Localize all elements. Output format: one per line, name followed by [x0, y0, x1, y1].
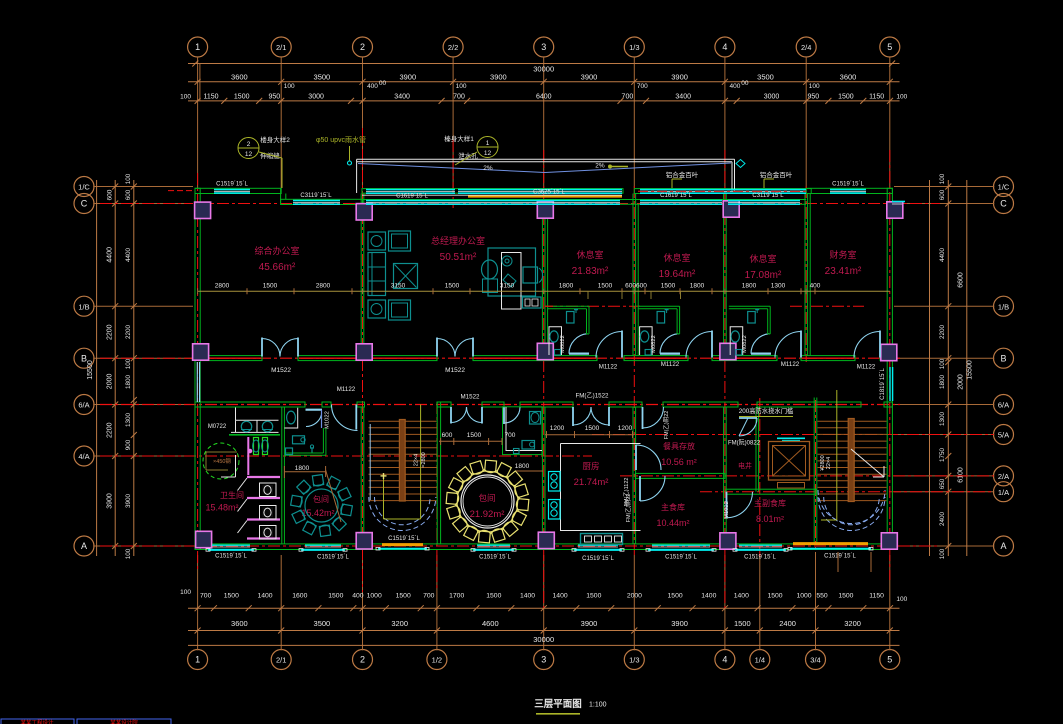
svg-text:600: 600	[107, 189, 114, 200]
svg-text:综合办公室: 综合办公室	[254, 245, 299, 256]
svg-text:M1522: M1522	[445, 367, 465, 374]
svg-text:C1519´15´L: C1519´15´L	[824, 554, 856, 560]
svg-text:C: C	[81, 199, 88, 209]
svg-text:电井: 电井	[738, 461, 752, 470]
svg-text:2: 2	[360, 655, 365, 665]
svg-text:3200: 3200	[391, 619, 408, 628]
svg-text:1500: 1500	[224, 593, 239, 600]
svg-text:1800: 1800	[690, 283, 705, 290]
svg-text:900: 900	[125, 439, 132, 450]
svg-text:泄水孔: 泄水孔	[458, 151, 478, 160]
svg-text:3500: 3500	[314, 619, 331, 628]
svg-text:45.66m²: 45.66m²	[259, 262, 296, 273]
svg-text:C1519´15´L: C1519´15´L	[317, 555, 349, 561]
svg-text:3000: 3000	[764, 94, 780, 101]
svg-text:3600: 3600	[840, 72, 857, 81]
svg-text:C1619´15´L: C1619´15´L	[396, 194, 428, 200]
svg-text:3200: 3200	[844, 619, 861, 628]
svg-text:C: C	[1000, 199, 1007, 209]
svg-text:M1522: M1522	[461, 394, 480, 401]
svg-text:100: 100	[896, 94, 907, 101]
svg-text:400: 400	[729, 83, 740, 90]
svg-text:×450钢: ×450钢	[213, 457, 231, 465]
svg-text:22×4: 22×4	[826, 457, 832, 469]
svg-text:FM(乙)阴22: FM(乙)阴22	[662, 411, 670, 440]
svg-text:1500: 1500	[838, 593, 853, 600]
svg-text:2/2: 2/2	[448, 43, 458, 52]
svg-text:3500: 3500	[757, 72, 774, 81]
svg-text:1400: 1400	[257, 593, 272, 600]
svg-text:700: 700	[622, 94, 634, 101]
svg-text:100: 100	[896, 596, 907, 603]
svg-text:100: 100	[456, 83, 467, 90]
svg-text:3400: 3400	[675, 94, 691, 101]
svg-text:2200: 2200	[107, 422, 114, 438]
svg-text:600: 600	[125, 189, 132, 200]
svg-text:A: A	[81, 541, 87, 551]
svg-text:21.74m²: 21.74m²	[574, 477, 609, 488]
svg-text:1500: 1500	[586, 593, 601, 600]
svg-text:1800: 1800	[125, 375, 132, 390]
svg-text:厨房: 厨房	[582, 461, 599, 471]
svg-text:2200: 2200	[107, 324, 114, 340]
svg-text:4/A: 4/A	[78, 452, 89, 461]
svg-text:1500: 1500	[445, 283, 460, 290]
svg-text:700: 700	[423, 593, 435, 600]
svg-text:休息室: 休息室	[663, 252, 690, 263]
svg-text:1800: 1800	[515, 463, 530, 470]
svg-text:C3119´15´L: C3119´15´L	[300, 193, 332, 199]
svg-text:¥2800: ¥2800	[820, 455, 826, 470]
svg-text:1800: 1800	[559, 283, 574, 290]
svg-text:主食库: 主食库	[661, 502, 685, 512]
svg-text:1200: 1200	[618, 425, 633, 432]
svg-text:3900: 3900	[671, 619, 688, 628]
svg-text:100: 100	[284, 83, 295, 90]
svg-text:M1522: M1522	[271, 367, 291, 374]
svg-text:1500: 1500	[396, 593, 411, 600]
svg-text:卫生间: 卫生间	[220, 490, 244, 500]
svg-text:8.01m²: 8.01m²	[756, 514, 784, 524]
svg-text:M1122: M1122	[337, 386, 356, 393]
svg-text:17.08m²: 17.08m²	[745, 270, 782, 281]
svg-text:100: 100	[180, 94, 191, 101]
svg-text:2000: 2000	[107, 374, 114, 390]
svg-text:1150: 1150	[869, 593, 884, 600]
svg-text:1750: 1750	[939, 448, 946, 463]
svg-text:2000: 2000	[627, 593, 642, 600]
svg-text:5: 5	[887, 42, 892, 52]
svg-text:15500: 15500	[87, 360, 94, 380]
svg-text:3400: 3400	[394, 94, 410, 101]
svg-text:C1519´15´L: C1519´15´L	[744, 555, 776, 561]
svg-text:6600: 6600	[958, 272, 965, 288]
svg-text:6100: 6100	[958, 467, 965, 483]
svg-text:2200: 2200	[125, 325, 132, 340]
svg-text:6400: 6400	[536, 94, 552, 101]
svg-text:2800: 2800	[215, 283, 230, 290]
svg-text:4400: 4400	[939, 248, 946, 263]
svg-text:1500: 1500	[734, 619, 751, 628]
svg-text:30000: 30000	[533, 65, 554, 74]
svg-text:3150: 3150	[500, 283, 515, 290]
svg-text:2%: 2%	[483, 165, 493, 172]
svg-text:3900: 3900	[671, 72, 688, 81]
svg-text:M1022: M1022	[325, 411, 331, 429]
svg-text:1/4: 1/4	[755, 656, 765, 665]
svg-text:1/C: 1/C	[998, 183, 1010, 192]
svg-text:C1619´15´L: C1619´15´L	[660, 193, 692, 199]
svg-text:总经理办公室: 总经理办公室	[431, 235, 485, 246]
svg-text:1500: 1500	[585, 425, 600, 432]
svg-text:φ50 upvc雨水管: φ50 upvc雨水管	[316, 135, 366, 144]
svg-text:2800: 2800	[316, 283, 331, 290]
svg-text:3600: 3600	[231, 619, 248, 628]
svg-text:M1022: M1022	[724, 501, 730, 519]
svg-text:19.64m²: 19.64m²	[659, 269, 696, 280]
svg-text:3900: 3900	[399, 72, 416, 81]
svg-text:1:100: 1:100	[589, 702, 607, 709]
svg-text:1800: 1800	[939, 375, 946, 390]
svg-text:100: 100	[939, 548, 946, 559]
svg-text:2400: 2400	[939, 512, 946, 527]
svg-text:3: 3	[541, 655, 546, 665]
svg-text:1500: 1500	[838, 94, 854, 101]
svg-text:600: 600	[442, 432, 453, 439]
svg-text:2/A: 2/A	[998, 472, 1009, 481]
svg-text:1400: 1400	[734, 593, 749, 600]
svg-text:C1519´15´L: C1519´15´L	[479, 555, 511, 561]
svg-text:100: 100	[939, 358, 946, 369]
svg-text:2: 2	[360, 42, 365, 52]
svg-text:2000: 2000	[958, 374, 965, 390]
svg-text:1200: 1200	[550, 425, 565, 432]
svg-text:700: 700	[637, 83, 648, 90]
svg-text:财务室: 财务室	[829, 249, 856, 260]
svg-text:1300: 1300	[939, 412, 946, 427]
svg-text:1/B: 1/B	[998, 302, 1009, 311]
svg-text:3900: 3900	[581, 619, 598, 628]
svg-text:6/A: 6/A	[78, 401, 89, 410]
svg-text:2/1: 2/1	[276, 43, 286, 52]
svg-text:1/2: 1/2	[432, 656, 442, 665]
svg-text:2/1: 2/1	[276, 656, 286, 665]
svg-text:铝合金百叶: 铝合金百叶	[666, 170, 699, 179]
svg-text:1600: 1600	[292, 593, 307, 600]
svg-text:3: 3	[541, 42, 546, 52]
svg-text:1/B: 1/B	[78, 302, 89, 311]
svg-text:12: 12	[245, 151, 253, 158]
svg-text:包间: 包间	[313, 494, 329, 504]
svg-text:100: 100	[939, 173, 946, 184]
svg-text:M1122: M1122	[857, 364, 876, 371]
svg-text:2200: 2200	[939, 325, 946, 340]
svg-text:3900: 3900	[125, 494, 132, 509]
svg-text:15500: 15500	[967, 360, 974, 380]
svg-text:M1122: M1122	[599, 364, 618, 371]
svg-text:3150: 3150	[391, 283, 406, 290]
svg-text:2/4: 2/4	[801, 43, 811, 52]
svg-text:4400: 4400	[125, 248, 132, 263]
svg-text:M1122: M1122	[781, 361, 800, 368]
svg-text:3900: 3900	[581, 72, 598, 81]
svg-text:铝合金百叶: 铝合金百叶	[760, 170, 793, 179]
svg-text:4: 4	[722, 655, 727, 665]
svg-text:=2800: =2800	[421, 452, 427, 467]
svg-text:00: 00	[741, 80, 749, 87]
svg-text:12: 12	[484, 150, 492, 157]
svg-text:700: 700	[505, 432, 516, 439]
svg-text:100: 100	[809, 83, 820, 90]
svg-text:2: 2	[247, 141, 251, 148]
svg-text:5/A: 5/A	[998, 431, 1009, 440]
svg-text:950: 950	[268, 94, 280, 101]
svg-text:3600: 3600	[231, 72, 248, 81]
svg-text:C1519´15´L: C1519´15´L	[215, 554, 247, 560]
svg-text:FM(乙)1522: FM(乙)1522	[575, 393, 609, 400]
svg-text:400: 400	[352, 593, 364, 600]
svg-text:100: 100	[125, 173, 132, 184]
svg-text:1300: 1300	[771, 283, 786, 290]
svg-text:3900: 3900	[490, 72, 507, 81]
svg-text:1/3: 1/3	[629, 43, 639, 52]
svg-text:C1819´15´L: C1819´15´L	[880, 367, 886, 399]
svg-text:550: 550	[816, 593, 828, 600]
svg-text:A: A	[1000, 541, 1006, 551]
svg-text:600: 600	[939, 189, 946, 200]
svg-text:10.56 m²: 10.56 m²	[661, 457, 697, 467]
svg-text:楼身大样2: 楼身大样2	[260, 135, 290, 144]
svg-text:1700: 1700	[449, 593, 464, 600]
svg-text:1500: 1500	[598, 283, 613, 290]
svg-text:50.51m²: 50.51m²	[440, 252, 477, 263]
svg-text:C1519´15´L: C1519´15´L	[216, 181, 248, 187]
svg-text:1150: 1150	[869, 94, 884, 101]
svg-text:C3119´15´L: C3119´15´L	[752, 193, 784, 199]
svg-text:100: 100	[180, 589, 191, 596]
svg-text:1500: 1500	[234, 94, 250, 101]
svg-text:1500: 1500	[328, 593, 343, 600]
svg-text:C3625´15´L: C3625´15´L	[533, 190, 565, 196]
svg-text:榛身大样1: 榛身大样1	[444, 134, 474, 143]
svg-text:1/C: 1/C	[78, 183, 90, 192]
svg-text:22×4: 22×4	[414, 454, 420, 466]
svg-text:1500: 1500	[486, 593, 501, 600]
svg-text:5: 5	[887, 655, 892, 665]
svg-text:1400: 1400	[553, 593, 568, 600]
svg-text:M1122: M1122	[661, 361, 680, 368]
svg-text:700: 700	[200, 593, 212, 600]
svg-text:1800: 1800	[742, 283, 757, 290]
svg-text:1/A: 1/A	[998, 488, 1009, 497]
svg-text:主副食库: 主副食库	[754, 498, 786, 508]
svg-text:4400: 4400	[107, 247, 114, 263]
svg-text:3/4: 3/4	[810, 656, 820, 665]
svg-text:21.83m²: 21.83m²	[572, 266, 609, 277]
svg-text:M0722: M0722	[208, 424, 227, 430]
svg-text:2%: 2%	[595, 163, 605, 170]
svg-text:包间: 包间	[478, 493, 495, 503]
svg-text:1000: 1000	[796, 593, 811, 600]
svg-text:1: 1	[195, 42, 200, 52]
svg-text:600600: 600600	[625, 283, 647, 290]
svg-text:950: 950	[807, 94, 819, 101]
svg-text:10.44m²: 10.44m²	[656, 518, 689, 528]
svg-text:4600: 4600	[482, 619, 499, 628]
svg-text:200高防水挠水门槛: 200高防水挠水门槛	[739, 406, 794, 415]
svg-text:1500: 1500	[767, 593, 782, 600]
svg-text:1500: 1500	[263, 283, 278, 290]
svg-text:30000: 30000	[533, 635, 554, 644]
svg-text:100: 100	[125, 548, 132, 559]
svg-text:100: 100	[125, 358, 132, 369]
svg-text:FM(乙)阴22: FM(乙)阴22	[624, 494, 632, 523]
svg-text:1500: 1500	[467, 432, 482, 439]
svg-text:休息室: 休息室	[749, 253, 776, 264]
svg-text:FM(阮)0822: FM(阮)0822	[728, 439, 761, 447]
svg-text:2400: 2400	[779, 619, 796, 628]
svg-text:1500: 1500	[661, 283, 676, 290]
svg-text:C1519´15´L: C1519´15´L	[582, 556, 614, 562]
svg-text:1400: 1400	[701, 593, 716, 600]
svg-text:1000: 1000	[367, 593, 382, 600]
svg-text:B: B	[1000, 353, 1006, 363]
svg-text:餐具存放: 餐具存放	[663, 441, 695, 451]
svg-text:C1519´15´L: C1519´15´L	[665, 555, 697, 561]
svg-text:1300: 1300	[125, 413, 132, 428]
svg-text:21.92m²: 21.92m²	[470, 509, 505, 520]
svg-text:6/A: 6/A	[998, 401, 1009, 410]
svg-text:1800: 1800	[295, 465, 310, 472]
svg-text:1150: 1150	[203, 94, 218, 101]
svg-text:400: 400	[367, 83, 378, 90]
svg-text:700: 700	[453, 94, 465, 101]
svg-text:休息室: 休息室	[576, 249, 603, 260]
svg-text:3900: 3900	[107, 493, 114, 509]
svg-text:伸缩缝: 伸缩缝	[260, 151, 280, 160]
svg-text:1: 1	[195, 655, 200, 665]
svg-text:00: 00	[379, 80, 387, 87]
svg-text:1500: 1500	[668, 593, 683, 600]
svg-text:3500: 3500	[314, 72, 331, 81]
svg-text:1/3: 1/3	[629, 656, 639, 665]
svg-text:1: 1	[486, 140, 490, 147]
svg-text:15.48m²: 15.48m²	[205, 503, 238, 513]
svg-text:3000: 3000	[308, 94, 324, 101]
svg-text:650: 650	[939, 478, 946, 489]
svg-text:C1519´15´L: C1519´15´L	[388, 536, 420, 542]
svg-text:C1519´15´L: C1519´15´L	[832, 181, 864, 187]
svg-text:4: 4	[722, 42, 727, 52]
svg-text:三层平面图: 三层平面图	[534, 699, 582, 710]
svg-text:23.41m²: 23.41m²	[825, 266, 862, 277]
svg-text:1400: 1400	[520, 593, 535, 600]
